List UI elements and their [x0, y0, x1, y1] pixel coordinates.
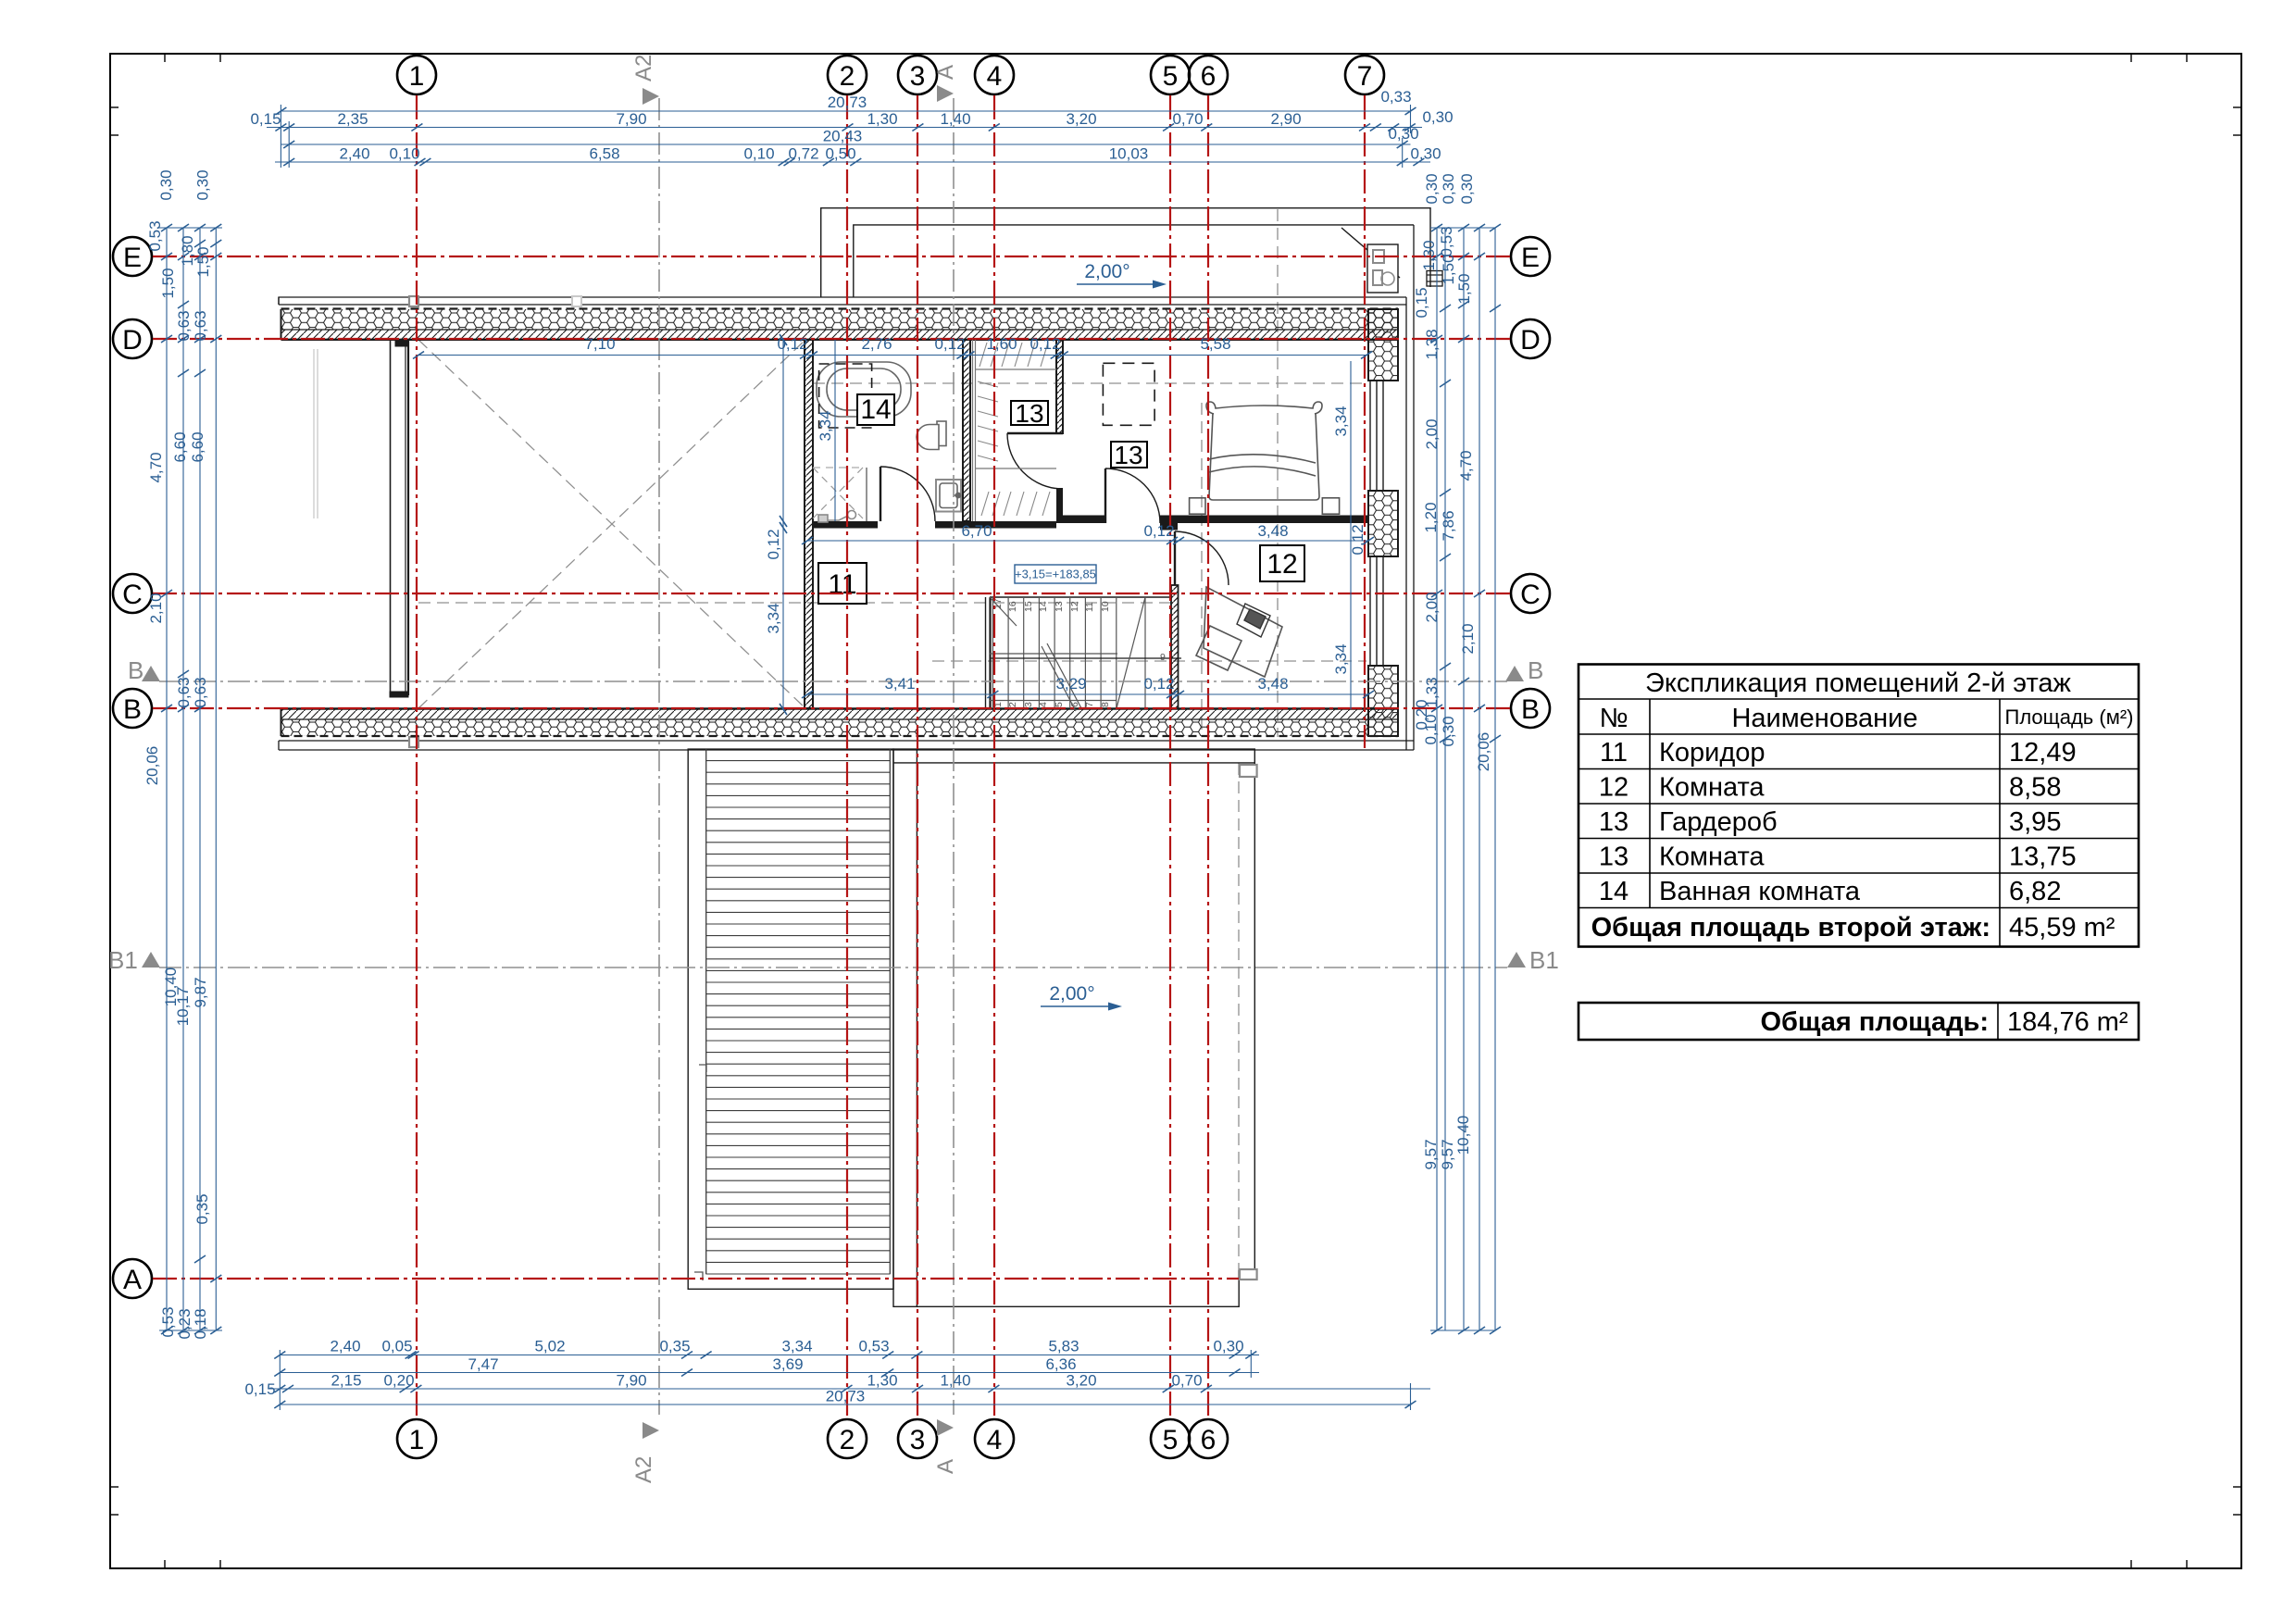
- svg-text:Комната: Комната: [1659, 773, 1765, 803]
- svg-text:1: 1: [409, 1425, 425, 1455]
- svg-text:4: 4: [1038, 702, 1049, 707]
- svg-text:10,17: 10,17: [174, 987, 192, 1027]
- svg-text:Общая площадь второй этаж:: Общая площадь второй этаж:: [1591, 913, 1990, 943]
- svg-text:0,10: 0,10: [1422, 714, 1440, 744]
- svg-text:E: E: [123, 243, 142, 273]
- svg-text:8,58: 8,58: [2009, 773, 2061, 803]
- svg-text:20,43: 20,43: [823, 128, 863, 145]
- svg-text:Экспликация помещений 2-й этаж: Экспликация помещений 2-й этаж: [1645, 668, 2072, 698]
- svg-text:0,53: 0,53: [159, 1306, 177, 1337]
- svg-text:1,38: 1,38: [1423, 329, 1441, 359]
- svg-text:9: 9: [1160, 652, 1166, 663]
- svg-text:6,60: 6,60: [189, 431, 206, 462]
- svg-text:2,40: 2,40: [339, 145, 369, 163]
- svg-text:3,34: 3,34: [1332, 643, 1350, 674]
- svg-text:0,35: 0,35: [659, 1338, 690, 1355]
- svg-text:B1: B1: [108, 946, 138, 974]
- svg-text:0,70: 0,70: [1172, 110, 1203, 128]
- svg-text:6: 6: [1201, 61, 1217, 92]
- svg-text:0,12: 0,12: [934, 335, 965, 353]
- svg-text:4: 4: [987, 1425, 1003, 1455]
- svg-text:2,76: 2,76: [861, 335, 892, 353]
- svg-text:11: 11: [1600, 738, 1628, 768]
- svg-text:45,59 m²: 45,59 m²: [2009, 913, 2115, 943]
- svg-text:0,50: 0,50: [825, 145, 855, 163]
- svg-text:5: 5: [1163, 1425, 1179, 1455]
- svg-text:Комната: Комната: [1659, 843, 1765, 872]
- svg-text:8: 8: [1100, 702, 1111, 707]
- svg-text:C: C: [1520, 580, 1541, 610]
- svg-text:6,82: 6,82: [2009, 877, 2061, 906]
- svg-text:0,70: 0,70: [1171, 1372, 1202, 1390]
- svg-text:0,30: 0,30: [1422, 108, 1453, 126]
- svg-text:4,70: 4,70: [147, 452, 165, 482]
- svg-text:2: 2: [840, 1425, 855, 1455]
- svg-text:1,50: 1,50: [194, 246, 212, 277]
- svg-text:5,58: 5,58: [1200, 335, 1230, 353]
- svg-text:20,73: 20,73: [828, 94, 867, 111]
- svg-text:13: 13: [1054, 601, 1065, 612]
- svg-text:0,30: 0,30: [1440, 173, 1457, 204]
- svg-text:6,60: 6,60: [171, 431, 189, 462]
- svg-text:3: 3: [910, 61, 926, 92]
- svg-text:7,90: 7,90: [616, 1372, 646, 1390]
- svg-text:20,73: 20,73: [826, 1388, 866, 1405]
- svg-text:2,40: 2,40: [330, 1338, 360, 1355]
- svg-text:7,47: 7,47: [468, 1355, 498, 1373]
- svg-text:2,15: 2,15: [331, 1372, 361, 1390]
- svg-text:0,30: 0,30: [157, 169, 175, 200]
- svg-text:14: 14: [1038, 601, 1049, 612]
- svg-text:0,30: 0,30: [1213, 1338, 1243, 1355]
- svg-text:A2: A2: [631, 55, 656, 81]
- svg-text:1,50: 1,50: [1455, 273, 1473, 304]
- svg-text:1,30: 1,30: [1420, 240, 1438, 270]
- svg-text:13,75: 13,75: [2009, 843, 2077, 872]
- svg-text:0,12: 0,12: [1349, 524, 1366, 555]
- svg-text:7: 7: [1357, 61, 1373, 92]
- svg-text:0,63: 0,63: [192, 310, 209, 341]
- svg-text:2,35: 2,35: [337, 110, 368, 128]
- svg-text:0,10: 0,10: [743, 145, 774, 163]
- svg-text:B: B: [1528, 656, 1543, 684]
- svg-text:0,53: 0,53: [1438, 226, 1455, 256]
- svg-text:4,70: 4,70: [1457, 450, 1475, 481]
- svg-text:16: 16: [1007, 601, 1018, 612]
- svg-text:3,34: 3,34: [1332, 406, 1350, 436]
- svg-text:6: 6: [1069, 702, 1080, 707]
- svg-text:2,10: 2,10: [1459, 623, 1477, 654]
- svg-text:B: B: [123, 694, 142, 725]
- svg-text:0,15: 0,15: [244, 1380, 275, 1398]
- svg-text:0,35: 0,35: [193, 1193, 211, 1224]
- svg-text:1: 1: [409, 61, 425, 92]
- svg-text:7,90: 7,90: [616, 110, 646, 128]
- svg-text:0,15: 0,15: [1413, 287, 1430, 318]
- svg-text:3,20: 3,20: [1066, 1372, 1096, 1390]
- svg-text:0,12: 0,12: [1143, 675, 1174, 693]
- svg-text:D: D: [122, 325, 143, 356]
- svg-text:12: 12: [1069, 601, 1080, 612]
- svg-text:3,20: 3,20: [1066, 110, 1096, 128]
- svg-text:20,06: 20,06: [1475, 732, 1492, 772]
- svg-text:Коридор: Коридор: [1659, 738, 1766, 768]
- svg-text:11: 11: [828, 569, 856, 600]
- svg-text:0,12: 0,12: [1143, 522, 1174, 540]
- svg-text:+3,15=+183,85: +3,15=+183,85: [1015, 568, 1096, 581]
- svg-text:0,63: 0,63: [175, 310, 193, 341]
- svg-text:3,69: 3,69: [772, 1355, 803, 1373]
- svg-text:Общая площадь:: Общая площадь:: [1760, 1007, 1989, 1037]
- svg-text:C: C: [122, 580, 143, 610]
- svg-text:0,30: 0,30: [1440, 716, 1457, 746]
- svg-text:7,86: 7,86: [1440, 510, 1457, 541]
- svg-text:0,18: 0,18: [192, 1308, 209, 1339]
- svg-text:2,00: 2,00: [1423, 592, 1441, 622]
- svg-text:9,87: 9,87: [192, 977, 209, 1007]
- svg-text:3,95: 3,95: [2009, 807, 2061, 837]
- svg-text:14: 14: [1599, 877, 1628, 906]
- svg-text:1,50: 1,50: [159, 268, 177, 298]
- svg-text:2: 2: [840, 61, 855, 92]
- svg-text:0,12: 0,12: [1029, 335, 1060, 353]
- svg-text:6: 6: [1201, 1425, 1217, 1455]
- svg-text:A: A: [123, 1265, 142, 1295]
- svg-text:5: 5: [1054, 702, 1065, 707]
- svg-text:1,20: 1,20: [1422, 502, 1440, 532]
- svg-text:6,58: 6,58: [589, 145, 619, 163]
- svg-text:Гардероб: Гардероб: [1659, 807, 1778, 837]
- svg-text:2: 2: [1007, 702, 1018, 707]
- svg-text:3,29: 3,29: [1055, 675, 1086, 693]
- svg-text:7,10: 7,10: [584, 335, 615, 353]
- svg-text:13: 13: [1015, 399, 1043, 428]
- svg-text:1,30: 1,30: [867, 110, 897, 128]
- svg-text:0,12: 0,12: [765, 529, 782, 559]
- svg-text:0,20: 0,20: [383, 1372, 414, 1390]
- svg-text:0,33: 0,33: [1380, 88, 1411, 106]
- svg-text:2,00°: 2,00°: [1084, 261, 1129, 282]
- svg-text:2,90: 2,90: [1270, 110, 1301, 128]
- svg-text:3: 3: [910, 1425, 926, 1455]
- svg-text:14: 14: [860, 394, 891, 425]
- svg-text:0,63: 0,63: [192, 677, 209, 707]
- svg-text:9,57: 9,57: [1422, 1139, 1440, 1169]
- svg-text:2,00°: 2,00°: [1049, 983, 1094, 1005]
- svg-text:3,34: 3,34: [817, 410, 834, 441]
- svg-text:2,10: 2,10: [147, 593, 165, 623]
- svg-text:E: E: [1521, 243, 1540, 273]
- svg-text:13: 13: [1114, 441, 1142, 469]
- svg-text:4: 4: [987, 61, 1003, 92]
- svg-text:5,02: 5,02: [534, 1338, 565, 1355]
- svg-text:Наименование: Наименование: [1731, 704, 1917, 733]
- svg-text:B: B: [1521, 694, 1540, 725]
- svg-text:1,40: 1,40: [940, 1372, 970, 1390]
- svg-text:3,34: 3,34: [765, 603, 782, 633]
- svg-text:12: 12: [1267, 549, 1297, 580]
- svg-text:A: A: [933, 65, 958, 80]
- svg-text:10: 10: [1100, 601, 1111, 612]
- svg-text:6,36: 6,36: [1045, 1355, 1076, 1373]
- svg-text:3,34: 3,34: [781, 1338, 812, 1355]
- svg-text:A2: A2: [631, 1456, 656, 1483]
- svg-text:B: B: [128, 656, 143, 684]
- svg-text:Ванная комната: Ванная комната: [1659, 877, 1861, 906]
- svg-text:№: №: [1599, 704, 1628, 733]
- svg-text:3: 3: [1023, 702, 1034, 707]
- svg-text:2,00: 2,00: [1423, 418, 1441, 449]
- svg-text:12: 12: [1599, 773, 1628, 803]
- svg-text:1,40: 1,40: [940, 110, 970, 128]
- svg-text:Площадь (м²): Площадь (м²): [2005, 705, 2134, 729]
- svg-text:0,30: 0,30: [1423, 173, 1441, 204]
- svg-text:184,76 m²: 184,76 m²: [2007, 1007, 2128, 1037]
- svg-text:12,49: 12,49: [2009, 738, 2077, 768]
- svg-text:13: 13: [1599, 843, 1628, 872]
- svg-text:3,41: 3,41: [884, 675, 915, 693]
- svg-text:0,30: 0,30: [1458, 173, 1476, 204]
- svg-text:0,72: 0,72: [788, 145, 818, 163]
- svg-text:0,15: 0,15: [250, 110, 281, 128]
- svg-text:11: 11: [1084, 602, 1095, 612]
- svg-text:3,48: 3,48: [1257, 675, 1288, 693]
- svg-text:0,10: 0,10: [389, 145, 419, 163]
- svg-text:0,30: 0,30: [194, 169, 212, 200]
- svg-text:0,63: 0,63: [175, 677, 193, 707]
- svg-text:0,53: 0,53: [146, 220, 164, 251]
- svg-text:0,30: 0,30: [1388, 125, 1418, 143]
- svg-text:10,40: 10,40: [1454, 1116, 1472, 1155]
- svg-text:5: 5: [1163, 61, 1179, 92]
- svg-text:A: A: [933, 1459, 958, 1474]
- svg-text:13: 13: [1599, 807, 1628, 837]
- svg-text:7: 7: [1084, 702, 1095, 707]
- svg-text:1,30: 1,30: [867, 1372, 897, 1390]
- svg-text:1,60: 1,60: [986, 335, 1017, 353]
- svg-text:0,30: 0,30: [1410, 145, 1441, 163]
- svg-text:15: 15: [1023, 601, 1034, 612]
- svg-text:20,06: 20,06: [143, 746, 161, 786]
- svg-text:0,05: 0,05: [381, 1338, 412, 1355]
- svg-text:B1: B1: [1529, 946, 1559, 974]
- svg-text:10,03: 10,03: [1109, 145, 1149, 163]
- svg-text:D: D: [1520, 325, 1541, 356]
- svg-text:5,83: 5,83: [1048, 1338, 1079, 1355]
- svg-text:3,48: 3,48: [1257, 522, 1288, 540]
- svg-text:6,70: 6,70: [961, 522, 992, 540]
- svg-text:0,53: 0,53: [858, 1338, 889, 1355]
